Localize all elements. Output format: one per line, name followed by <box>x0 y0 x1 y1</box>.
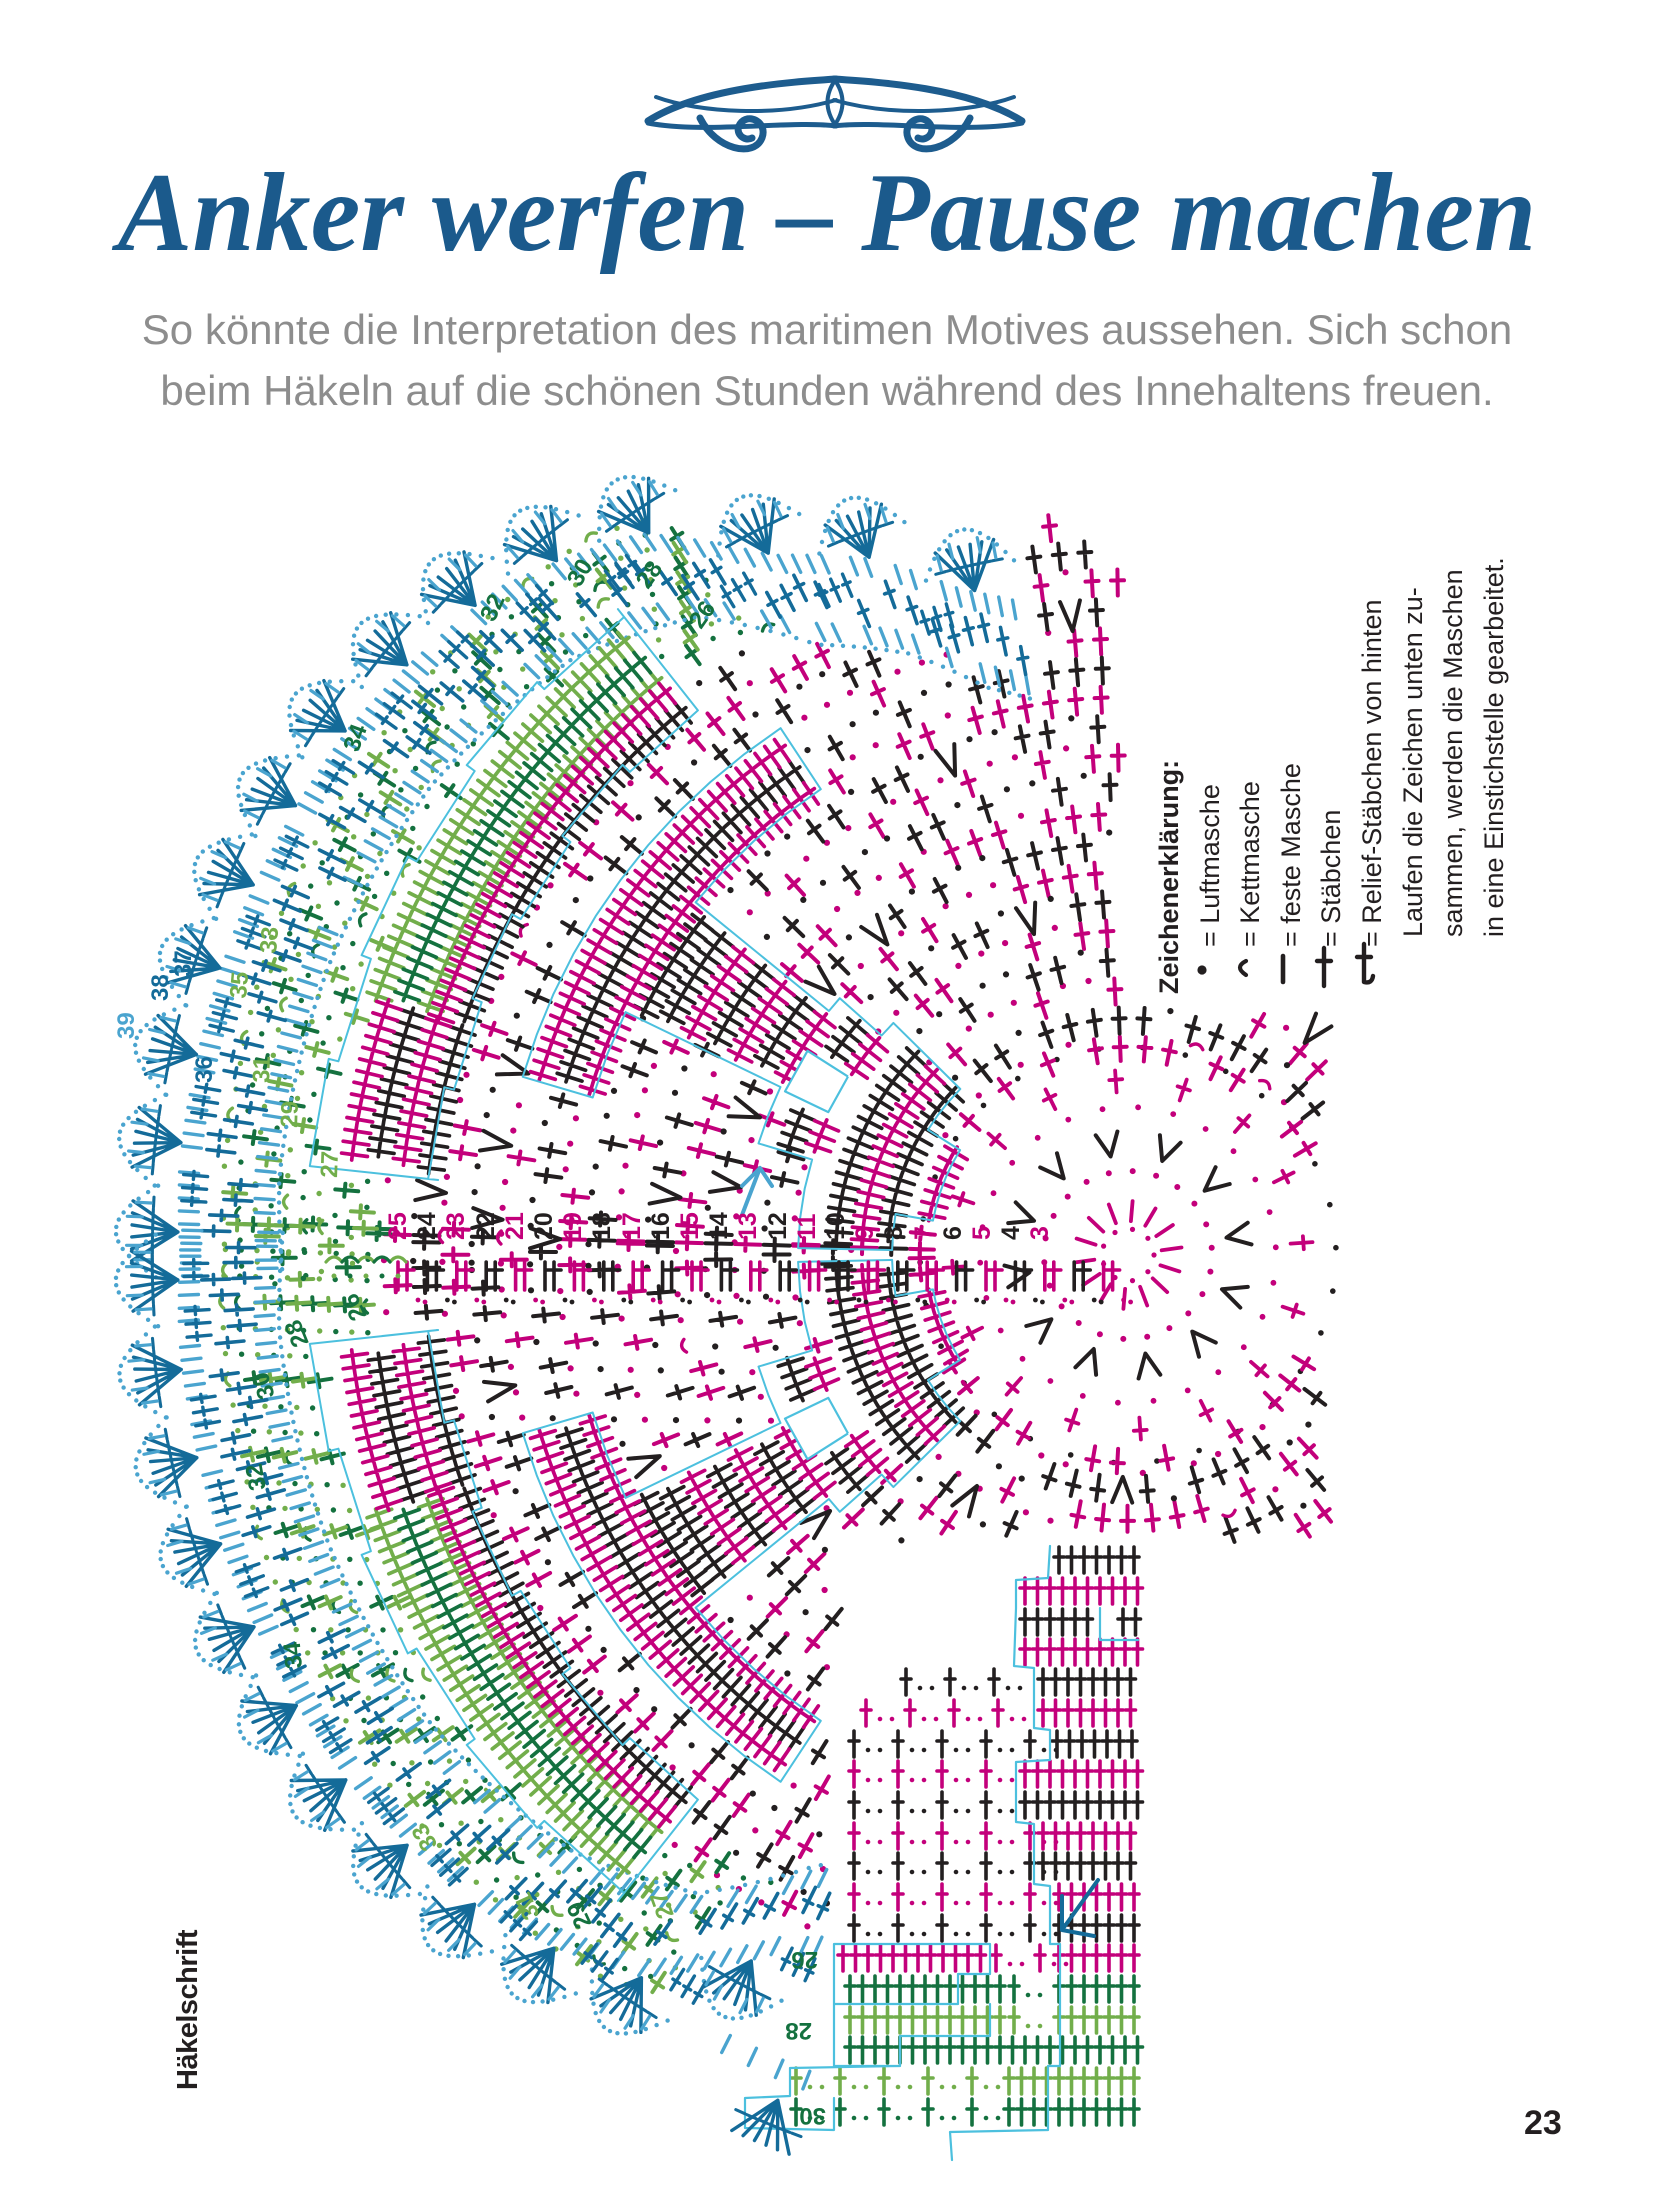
svg-text:9: 9 <box>851 1226 879 1240</box>
svg-text:8: 8 <box>880 1226 908 1240</box>
svg-text:21: 21 <box>501 1212 529 1240</box>
svg-text:17: 17 <box>618 1212 646 1240</box>
svg-text:22: 22 <box>472 1212 500 1240</box>
svg-text:24: 24 <box>413 1212 441 1240</box>
svg-text:10: 10 <box>822 1212 850 1240</box>
svg-text:36: 36 <box>191 1056 218 1083</box>
svg-text:14: 14 <box>705 1212 733 1240</box>
svg-text:15: 15 <box>676 1212 704 1240</box>
svg-text:19: 19 <box>559 1212 587 1240</box>
svg-text:32: 32 <box>241 1462 272 1493</box>
svg-text:28: 28 <box>785 2017 812 2044</box>
svg-text:27: 27 <box>645 1888 680 1922</box>
svg-text:13: 13 <box>734 1212 762 1240</box>
svg-text:35: 35 <box>225 971 254 1000</box>
svg-text:33: 33 <box>406 1819 443 1856</box>
svg-text:23: 23 <box>442 1212 470 1240</box>
svg-text:18: 18 <box>588 1212 616 1240</box>
svg-text:31: 31 <box>248 1056 276 1084</box>
svg-text:16: 16 <box>647 1212 675 1240</box>
svg-text:33: 33 <box>255 926 284 955</box>
svg-text:12: 12 <box>764 1212 792 1240</box>
svg-text:20: 20 <box>530 1212 558 1240</box>
svg-text:5: 5 <box>968 1226 996 1240</box>
svg-text:38: 38 <box>147 974 174 1001</box>
svg-text:3: 3 <box>1026 1226 1054 1240</box>
svg-text:26: 26 <box>791 1946 818 1973</box>
svg-text:4: 4 <box>997 1226 1025 1240</box>
svg-text:7: 7 <box>910 1226 938 1240</box>
svg-text:11: 11 <box>793 1213 821 1240</box>
svg-text:30: 30 <box>799 2102 826 2129</box>
svg-text:6: 6 <box>939 1226 967 1240</box>
svg-text:29: 29 <box>276 1101 304 1129</box>
svg-text:39: 39 <box>113 1012 140 1039</box>
svg-text:34: 34 <box>279 1640 308 1670</box>
svg-text:25: 25 <box>384 1212 412 1240</box>
svg-text:26: 26 <box>337 1289 373 1325</box>
svg-text:37: 37 <box>170 950 197 977</box>
svg-text:27: 27 <box>316 1151 344 1179</box>
